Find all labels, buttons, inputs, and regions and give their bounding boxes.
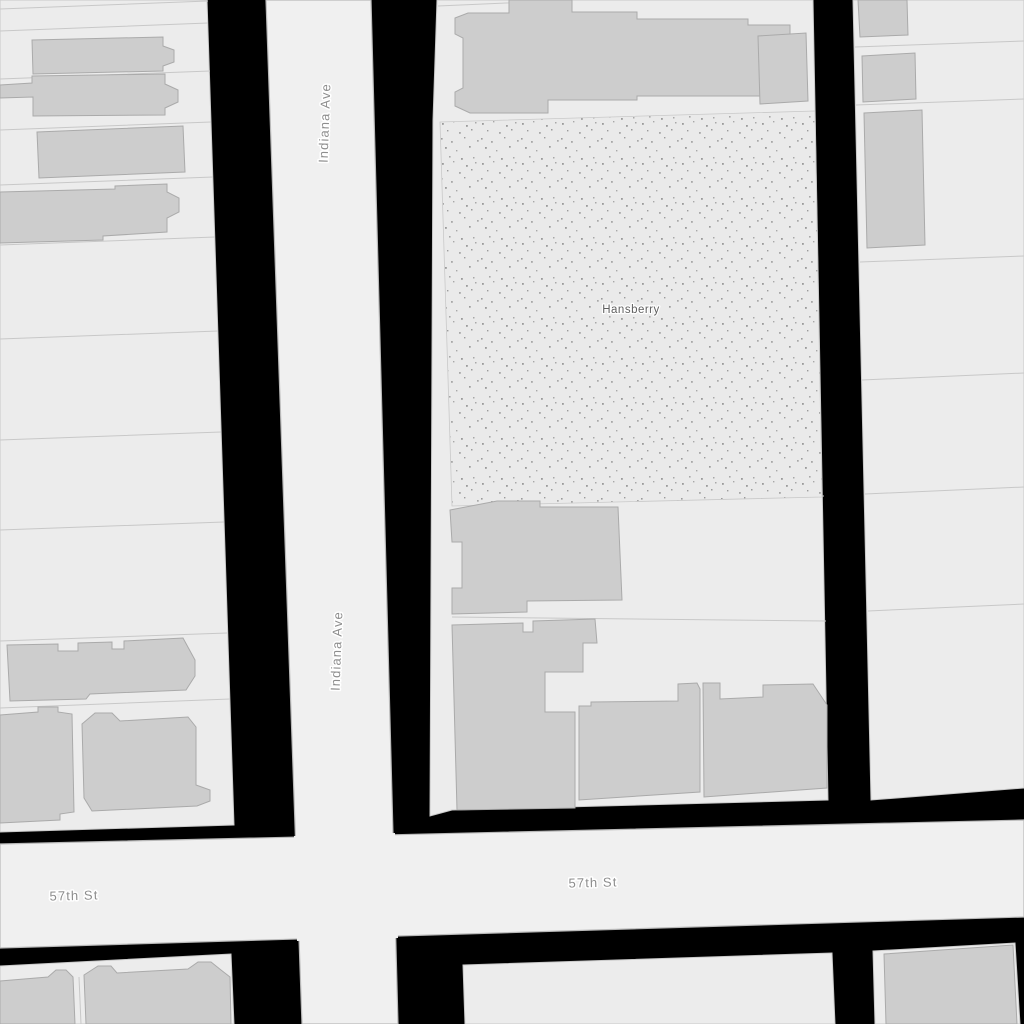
- map-svg: Indiana Ave Indiana Ave 57th St 57th St …: [0, 0, 1024, 1024]
- street-label-57th-st-west: 57th St: [49, 887, 98, 903]
- city-block: [463, 953, 835, 1024]
- street-label-indiana-ave-lower: Indiana Ave: [328, 611, 346, 691]
- building: [84, 962, 231, 1024]
- park-label-hansberry: Hansberry: [602, 304, 660, 316]
- street-label-57th-st-east: 57th St: [568, 874, 617, 890]
- block-south-center: [463, 953, 835, 1024]
- building: [864, 110, 925, 248]
- building: [884, 945, 1017, 1024]
- building: [37, 126, 185, 178]
- building: [758, 33, 808, 104]
- building: [82, 713, 210, 811]
- building: [450, 501, 622, 614]
- map-canvas[interactable]: Indiana Ave Indiana Ave 57th St 57th St …: [0, 0, 1024, 1024]
- city-block: [0, 0, 234, 832]
- building: [452, 619, 597, 810]
- building: [862, 53, 916, 102]
- block-northwest: [0, 0, 234, 832]
- block-southeast: [873, 943, 1020, 1024]
- building: [858, 0, 908, 37]
- building: [0, 707, 74, 823]
- block-northeast: [853, 0, 1024, 800]
- block-center: [430, 0, 828, 816]
- street-label-indiana-ave-upper: Indiana Ave: [316, 83, 334, 163]
- building: [703, 683, 827, 797]
- block-southwest: [0, 954, 234, 1024]
- building: [32, 37, 174, 74]
- road-intersection: [294, 833, 398, 941]
